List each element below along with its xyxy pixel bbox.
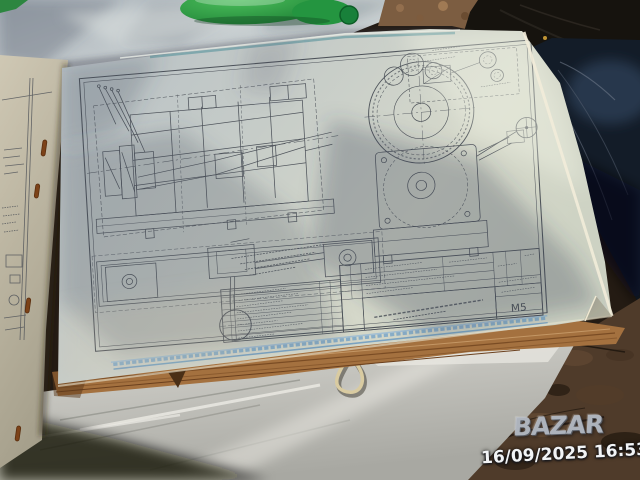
photo-scene: М5 [0, 0, 640, 480]
photo-of-open-technical-drawing-book: М5 [0, 0, 640, 480]
bottle-cap [340, 6, 358, 24]
watermark-logo: BAZAR [512, 409, 604, 441]
